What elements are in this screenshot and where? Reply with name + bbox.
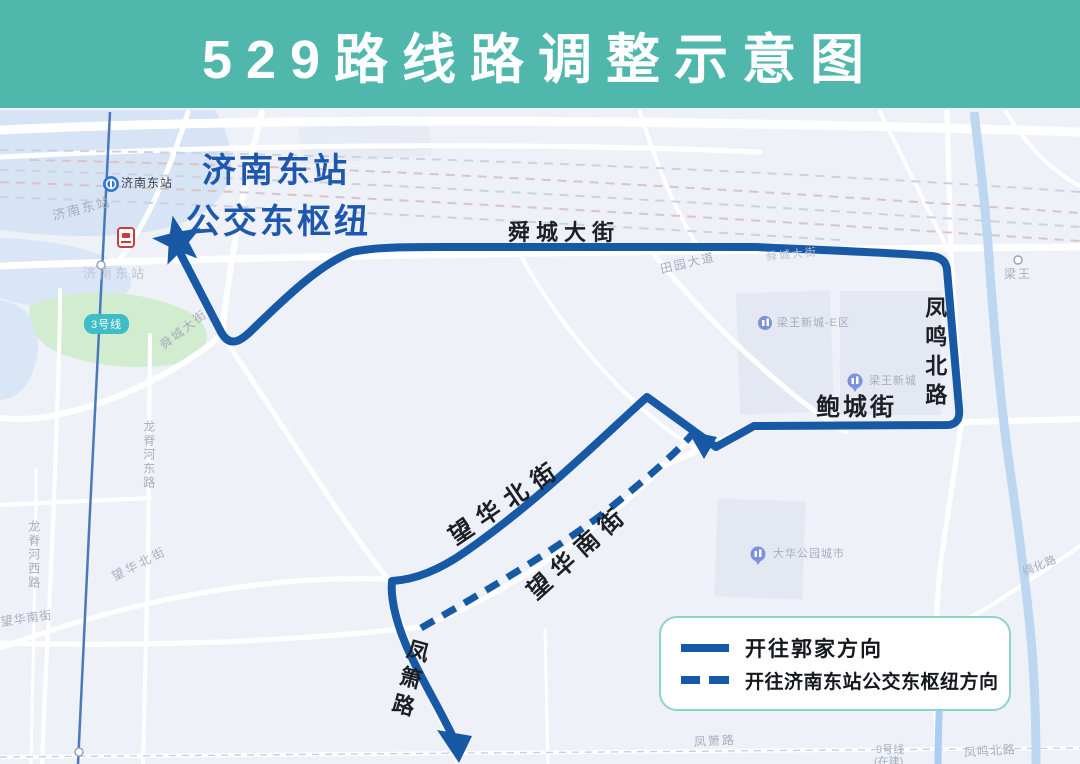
line3-badge: 3号线 xyxy=(84,314,129,334)
legend-dashed-label: 开往济南东站公交东枢纽方向 xyxy=(745,667,999,694)
map-label-longji-west: 龙脊河西路 xyxy=(26,520,40,590)
map-label-liangwang-xincheng: 梁王新城 xyxy=(869,375,917,388)
hub-name: 济南东站 公交东枢纽 xyxy=(186,146,371,248)
street-label-shuncheng: 舜城大街 xyxy=(508,220,620,245)
legend-box: 开往郭家方向 开往济南东站公交东枢纽方向 xyxy=(659,616,1011,711)
header-banner: 529路线路调整示意图 xyxy=(0,0,1080,108)
map-label-liangwang-e: 梁王新城-E区 xyxy=(777,317,850,330)
hub-name-line2: 公交东枢纽 xyxy=(186,197,371,248)
legend-dashed-line-swatch xyxy=(681,676,729,684)
rail-station-label-lower: 济南东站 xyxy=(83,267,147,282)
legend-row-solid: 开往郭家方向 xyxy=(681,632,1009,664)
map-label-longji-east: 龙脊河东路 xyxy=(141,420,155,490)
street-label-fengming-north: 凤鸣北路 xyxy=(922,296,947,412)
street-label-baocheng: 鲍城街 xyxy=(816,394,897,422)
metro-station-label: 济南东站 xyxy=(121,177,173,191)
legend-solid-label: 开往郭家方向 xyxy=(745,633,883,663)
map-label-line9: 9号线 xyxy=(876,744,904,757)
map-label-liangwang: 梁王 xyxy=(1004,268,1032,282)
page-title: 529路线路调整示意图 xyxy=(202,15,878,94)
map-label-line9-status: (在建) xyxy=(874,756,903,764)
liangwang-e-marker-icon xyxy=(758,316,772,330)
liangwang-station-dot xyxy=(1014,256,1022,264)
bus-route-map-page: 529路线路调整示意图 济南东站 济南东站 济南东站 济南东站 公交东枢纽 3号… xyxy=(0,0,1080,764)
legend-solid-line-swatch xyxy=(681,644,729,652)
hub-name-line1: 济南东站 xyxy=(186,146,371,197)
map-label-dahua: 大华公园城市 xyxy=(773,548,845,561)
train-icon xyxy=(118,228,134,247)
metro-logo-icon xyxy=(103,176,119,192)
map-label-fengxiao-gray: 凤箫路 xyxy=(694,734,737,750)
metro-station-dot xyxy=(75,748,83,756)
legend-row-dashed: 开往济南东站公交东枢纽方向 xyxy=(681,664,1009,696)
